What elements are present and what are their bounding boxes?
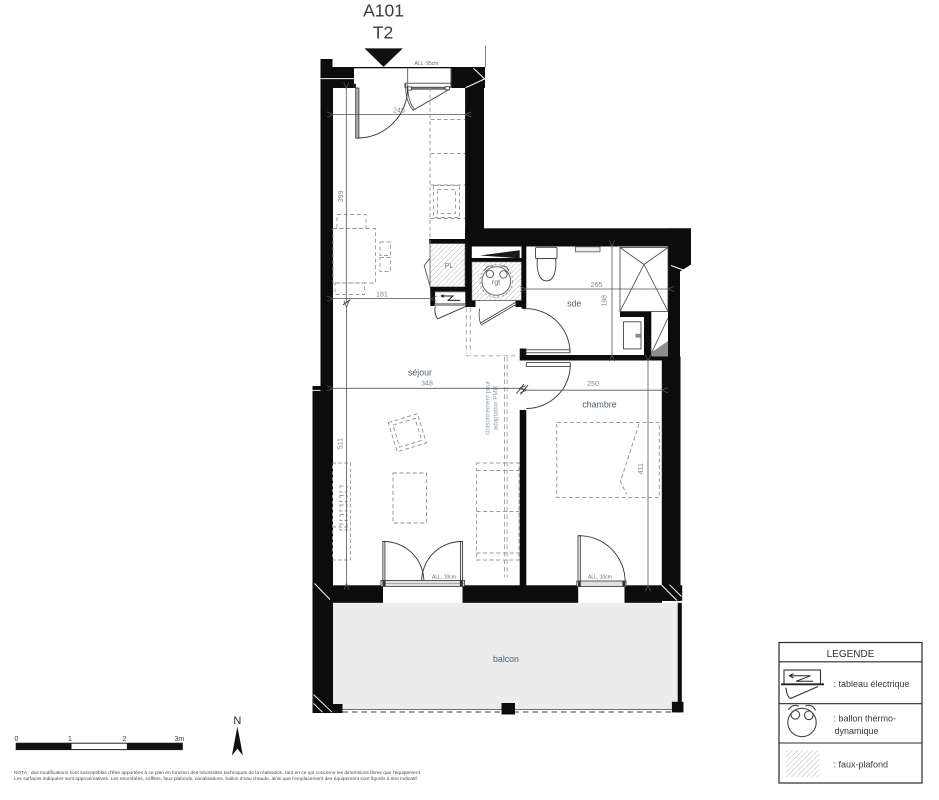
svg-text:séjour: séjour [408, 367, 432, 377]
svg-text:cloisonnement pour: cloisonnement pour [485, 381, 492, 435]
svg-text:A101: A101 [363, 1, 404, 21]
svg-text:2: 2 [123, 736, 127, 743]
svg-text:adaptation PMR: adaptation PMR [493, 385, 500, 430]
svg-text:511: 511 [338, 438, 345, 449]
svg-text:Les surfaces indiquées sont ap: Les surfaces indiquées sont approximativ… [14, 776, 418, 782]
svg-text:sde: sde [567, 298, 581, 308]
svg-text:NOTA : des modifications sont: NOTA : des modifications sont susceptibl… [14, 770, 421, 776]
svg-text:dynamique: dynamique [835, 726, 879, 736]
svg-text:: faux-plafond: : faux-plafond [834, 760, 889, 770]
svg-text:265: 265 [591, 282, 603, 289]
svg-text:PL: PL [445, 263, 454, 270]
svg-text:198: 198 [602, 295, 609, 307]
svg-text:1: 1 [68, 736, 72, 743]
svg-text:3m: 3m [175, 736, 185, 743]
svg-text:411: 411 [638, 463, 645, 474]
svg-text:balcon: balcon [493, 654, 519, 664]
svg-text:LEGENDE: LEGENDE [827, 649, 875, 660]
svg-text:rgt: rgt [492, 280, 500, 287]
svg-text:T2: T2 [373, 22, 393, 42]
svg-text:: tableau électrique: : tableau électrique [834, 679, 910, 689]
svg-text:250: 250 [587, 381, 599, 388]
svg-text:246: 246 [393, 108, 405, 115]
svg-text:181: 181 [376, 291, 388, 298]
svg-text:0: 0 [15, 736, 19, 743]
svg-text:ALL. 10cm: ALL. 10cm [588, 574, 612, 580]
svg-text:399: 399 [338, 190, 345, 202]
svg-text:348: 348 [421, 381, 433, 388]
svg-text:ALL. 95cm: ALL. 95cm [415, 61, 439, 67]
svg-text:N: N [233, 715, 241, 727]
svg-text:: ballon thermo-: : ballon thermo- [834, 714, 897, 724]
svg-text:ALL. 10cm: ALL. 10cm [432, 574, 456, 580]
svg-text:chambre: chambre [582, 400, 616, 410]
